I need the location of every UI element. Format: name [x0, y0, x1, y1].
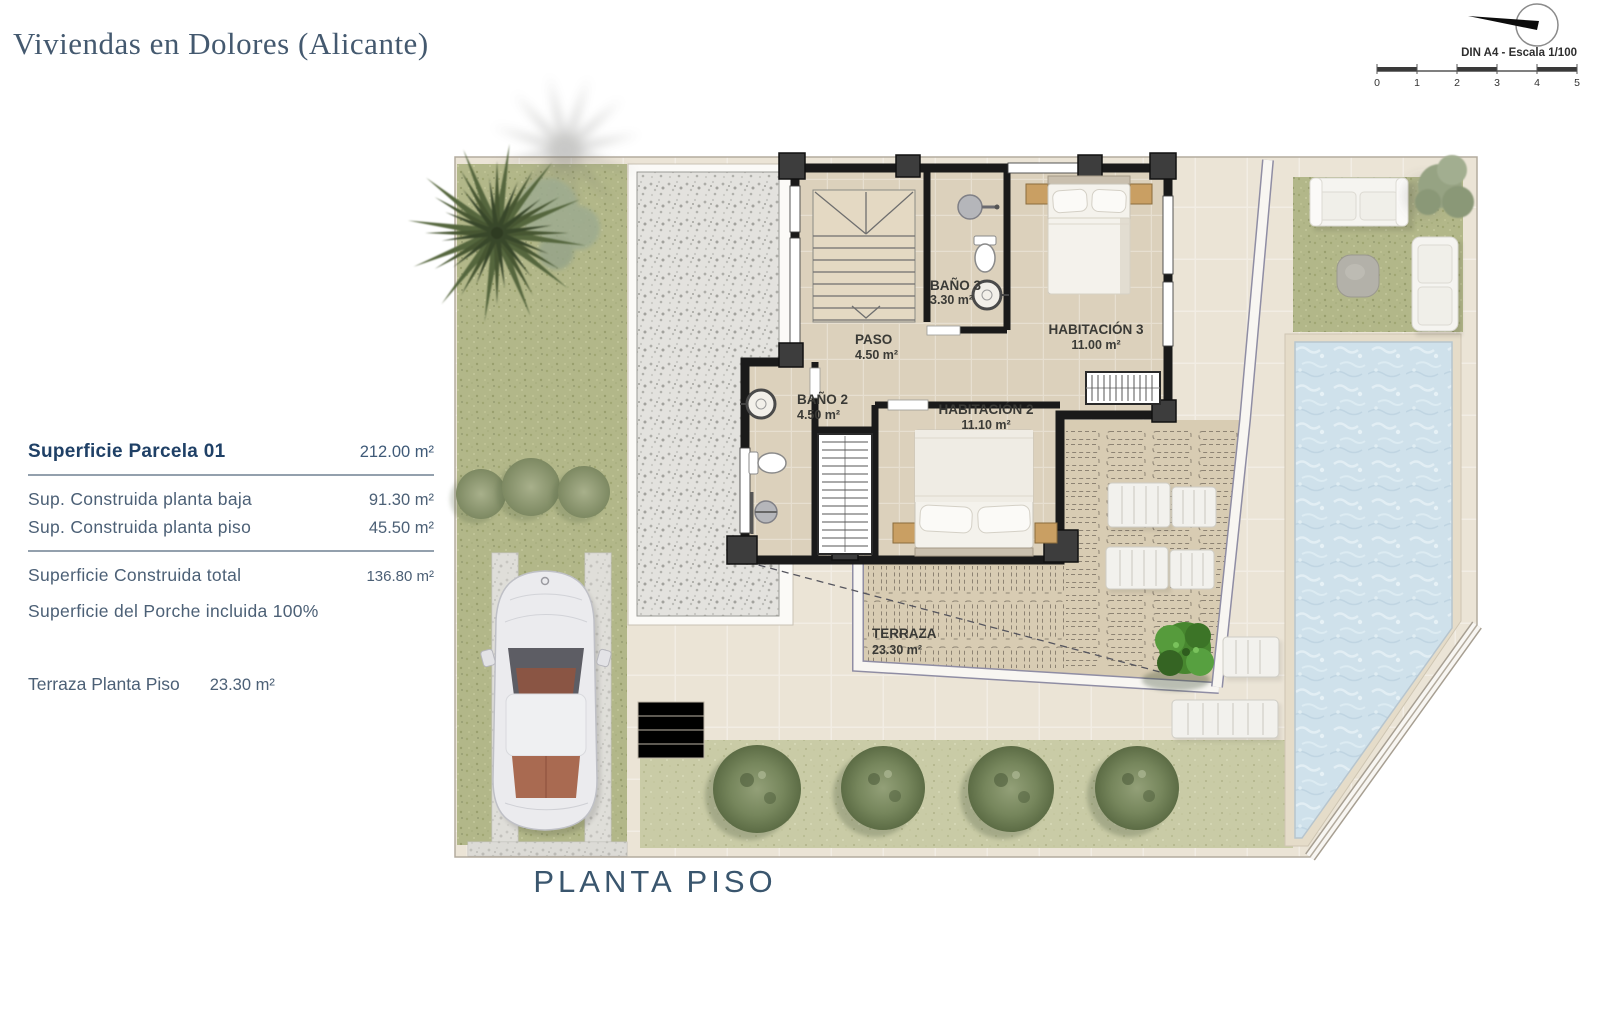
row-label: Superficie del Porche incluida 100%: [28, 598, 319, 625]
room-area: 11.10 m²: [961, 418, 1010, 432]
room-area: 23.30 m²: [872, 643, 922, 657]
room-area: 4.50 m²: [797, 408, 840, 422]
row-value: 136.80 m²: [366, 563, 434, 590]
table-row: Superficie Construida total 136.80 m²: [28, 562, 434, 590]
room-area: 11.00 m²: [1071, 338, 1120, 352]
car: [480, 571, 612, 836]
scale-tick: 4: [1534, 77, 1540, 89]
row-value: 45.50 m²: [369, 515, 434, 542]
closet: [818, 434, 872, 554]
divider: [28, 474, 434, 476]
scale-label: DIN A4 - Escala 1/100: [1461, 47, 1577, 59]
terraza-surface-row: Terraza Planta Piso 23.30 m²: [28, 674, 275, 695]
room-name: TERRAZA: [872, 626, 937, 641]
row-label: Superficie Parcela 01: [28, 438, 225, 465]
row-value: 91.30 m²: [369, 487, 434, 514]
scale-tick: 0: [1374, 77, 1380, 89]
row-label: Terraza Planta Piso: [28, 674, 180, 695]
room-name: HABITACIÓN 3: [1048, 322, 1143, 337]
garden-table: [1337, 255, 1379, 297]
summary-table: Superficie Parcela 01 212.00 m² Sup. Con…: [28, 438, 434, 625]
table-row: Sup. Construida planta baja 91.30 m²: [28, 486, 434, 514]
scale-tick: 2: [1454, 77, 1460, 89]
table-row: Sup. Construida planta piso 45.50 m²: [28, 514, 434, 542]
sun-lounger: [1223, 637, 1282, 681]
row-label: Superficie Construida total: [28, 562, 241, 589]
table-row: Superficie del Porche incluida 100%: [28, 598, 434, 625]
page-title: Viviendas en Dolores (Alicante): [13, 26, 429, 62]
compass-icon: [1468, 4, 1558, 46]
row-value: 212.00 m²: [360, 439, 434, 466]
room-name: BAÑO 2: [797, 392, 848, 407]
row-label: Sup. Construida planta baja: [28, 486, 252, 513]
row-value: 23.30 m²: [210, 676, 275, 695]
sun-lounger: [1106, 547, 1214, 593]
toilet-fixture: [749, 452, 786, 474]
table-row: Superficie Parcela 01 212.00 m²: [28, 438, 434, 466]
plan-title: PLANTA PISO: [455, 864, 855, 900]
row-label: Sup. Construida planta piso: [28, 514, 251, 541]
divider: [28, 550, 434, 552]
scale-tick: 5: [1574, 77, 1580, 89]
scale-tick: 3: [1494, 77, 1500, 89]
room-name: BAÑO 3: [930, 278, 981, 293]
sun-lounger: [1108, 483, 1216, 531]
staircase: [813, 190, 915, 322]
exterior-steps: [638, 702, 704, 758]
garden-sofa: [1412, 237, 1462, 336]
sun-lounger: [1172, 700, 1281, 742]
room-name: PASO: [855, 332, 892, 347]
scale-bar: DIN A4 - Escala 1/100 0 1 2 3 4 5: [1374, 47, 1580, 89]
room-area: 3.30 m²: [930, 293, 973, 307]
room-area: 4.50 m²: [855, 348, 898, 362]
toilet-fixture: [974, 236, 996, 272]
bed: [893, 430, 1057, 556]
wardrobe: [1086, 372, 1160, 404]
scale-tick: 1: [1414, 77, 1420, 89]
garden-sofa: [1310, 178, 1414, 231]
room-name: HABITACIÓN 2: [938, 402, 1033, 417]
